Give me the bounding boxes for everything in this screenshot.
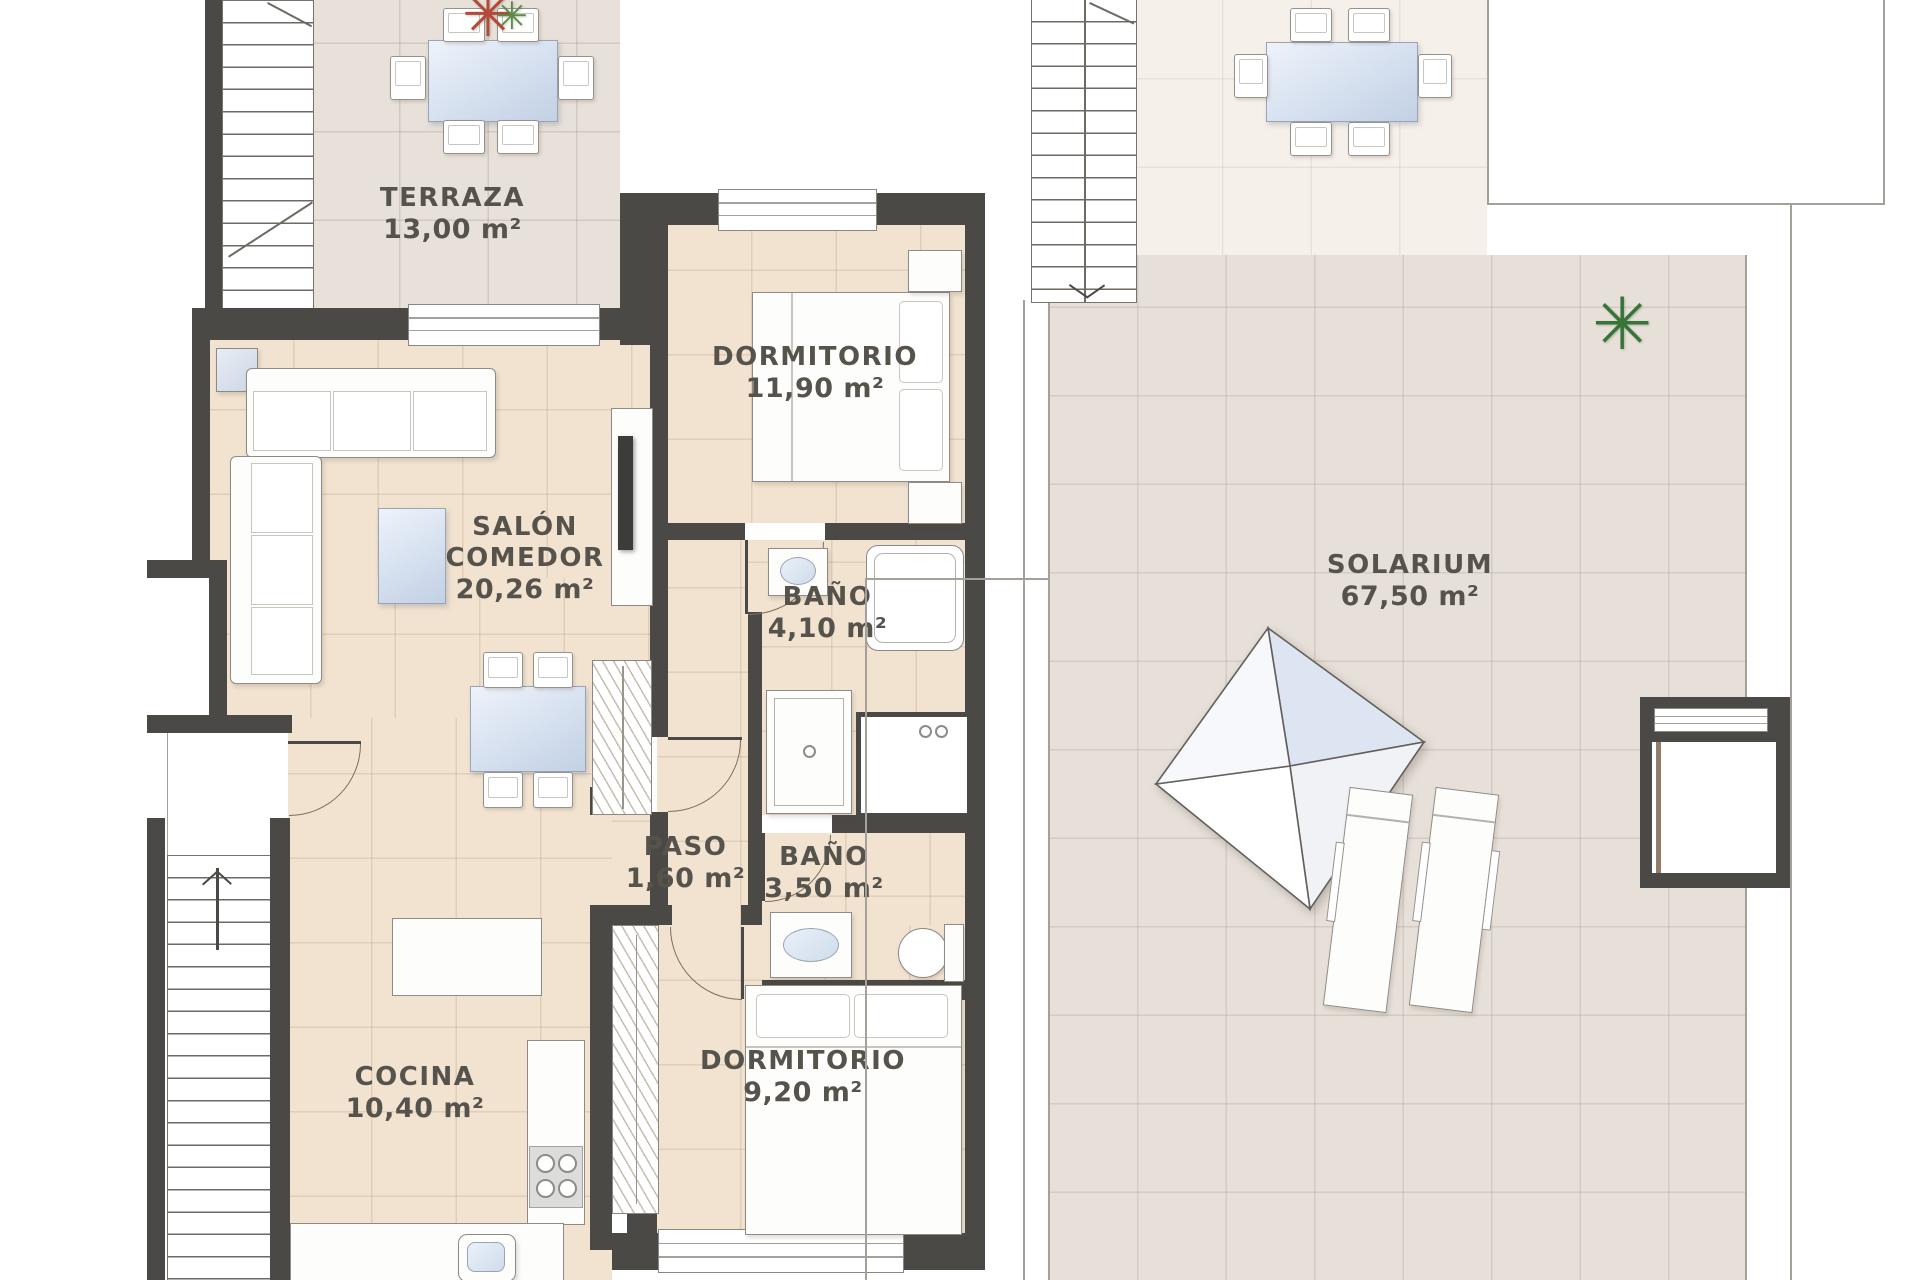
chair xyxy=(1348,122,1390,156)
chair xyxy=(1234,54,1268,98)
chair xyxy=(1348,8,1390,42)
enclosure-wall xyxy=(1640,742,1652,888)
room-area: 67,50 m² xyxy=(1305,581,1515,613)
roof-dining-table xyxy=(1266,42,1418,122)
floorplan-canvas: ✳ ✳ xyxy=(0,0,1920,1280)
roof-outline xyxy=(1023,300,1025,1280)
enclosure-wall xyxy=(1776,742,1790,888)
roof-plan: ✳ SOLARIUM 67,50 m² xyxy=(0,0,1920,1280)
lounger-headrest xyxy=(1433,814,1495,823)
chair xyxy=(1290,122,1332,156)
green-plant-icon: ✳ xyxy=(1592,282,1652,366)
roof-outline xyxy=(1790,205,1792,1280)
chair xyxy=(1290,8,1332,42)
enclosure-interior xyxy=(1652,742,1776,873)
roof-outline xyxy=(1473,203,1885,205)
roof-outline xyxy=(1487,0,1489,203)
roof-outline xyxy=(865,578,867,1280)
lounger-headrest xyxy=(1347,814,1409,823)
enclosure-door xyxy=(1656,742,1661,873)
stair-rail xyxy=(1084,0,1086,302)
roof-outline xyxy=(1883,0,1885,205)
room-name: SOLARIUM xyxy=(1305,550,1515,581)
enclosure-wall xyxy=(1640,873,1790,888)
enclosure-window xyxy=(1654,708,1768,732)
chair xyxy=(1418,54,1452,98)
room-label-solarium: SOLARIUM 67,50 m² xyxy=(1305,550,1515,613)
